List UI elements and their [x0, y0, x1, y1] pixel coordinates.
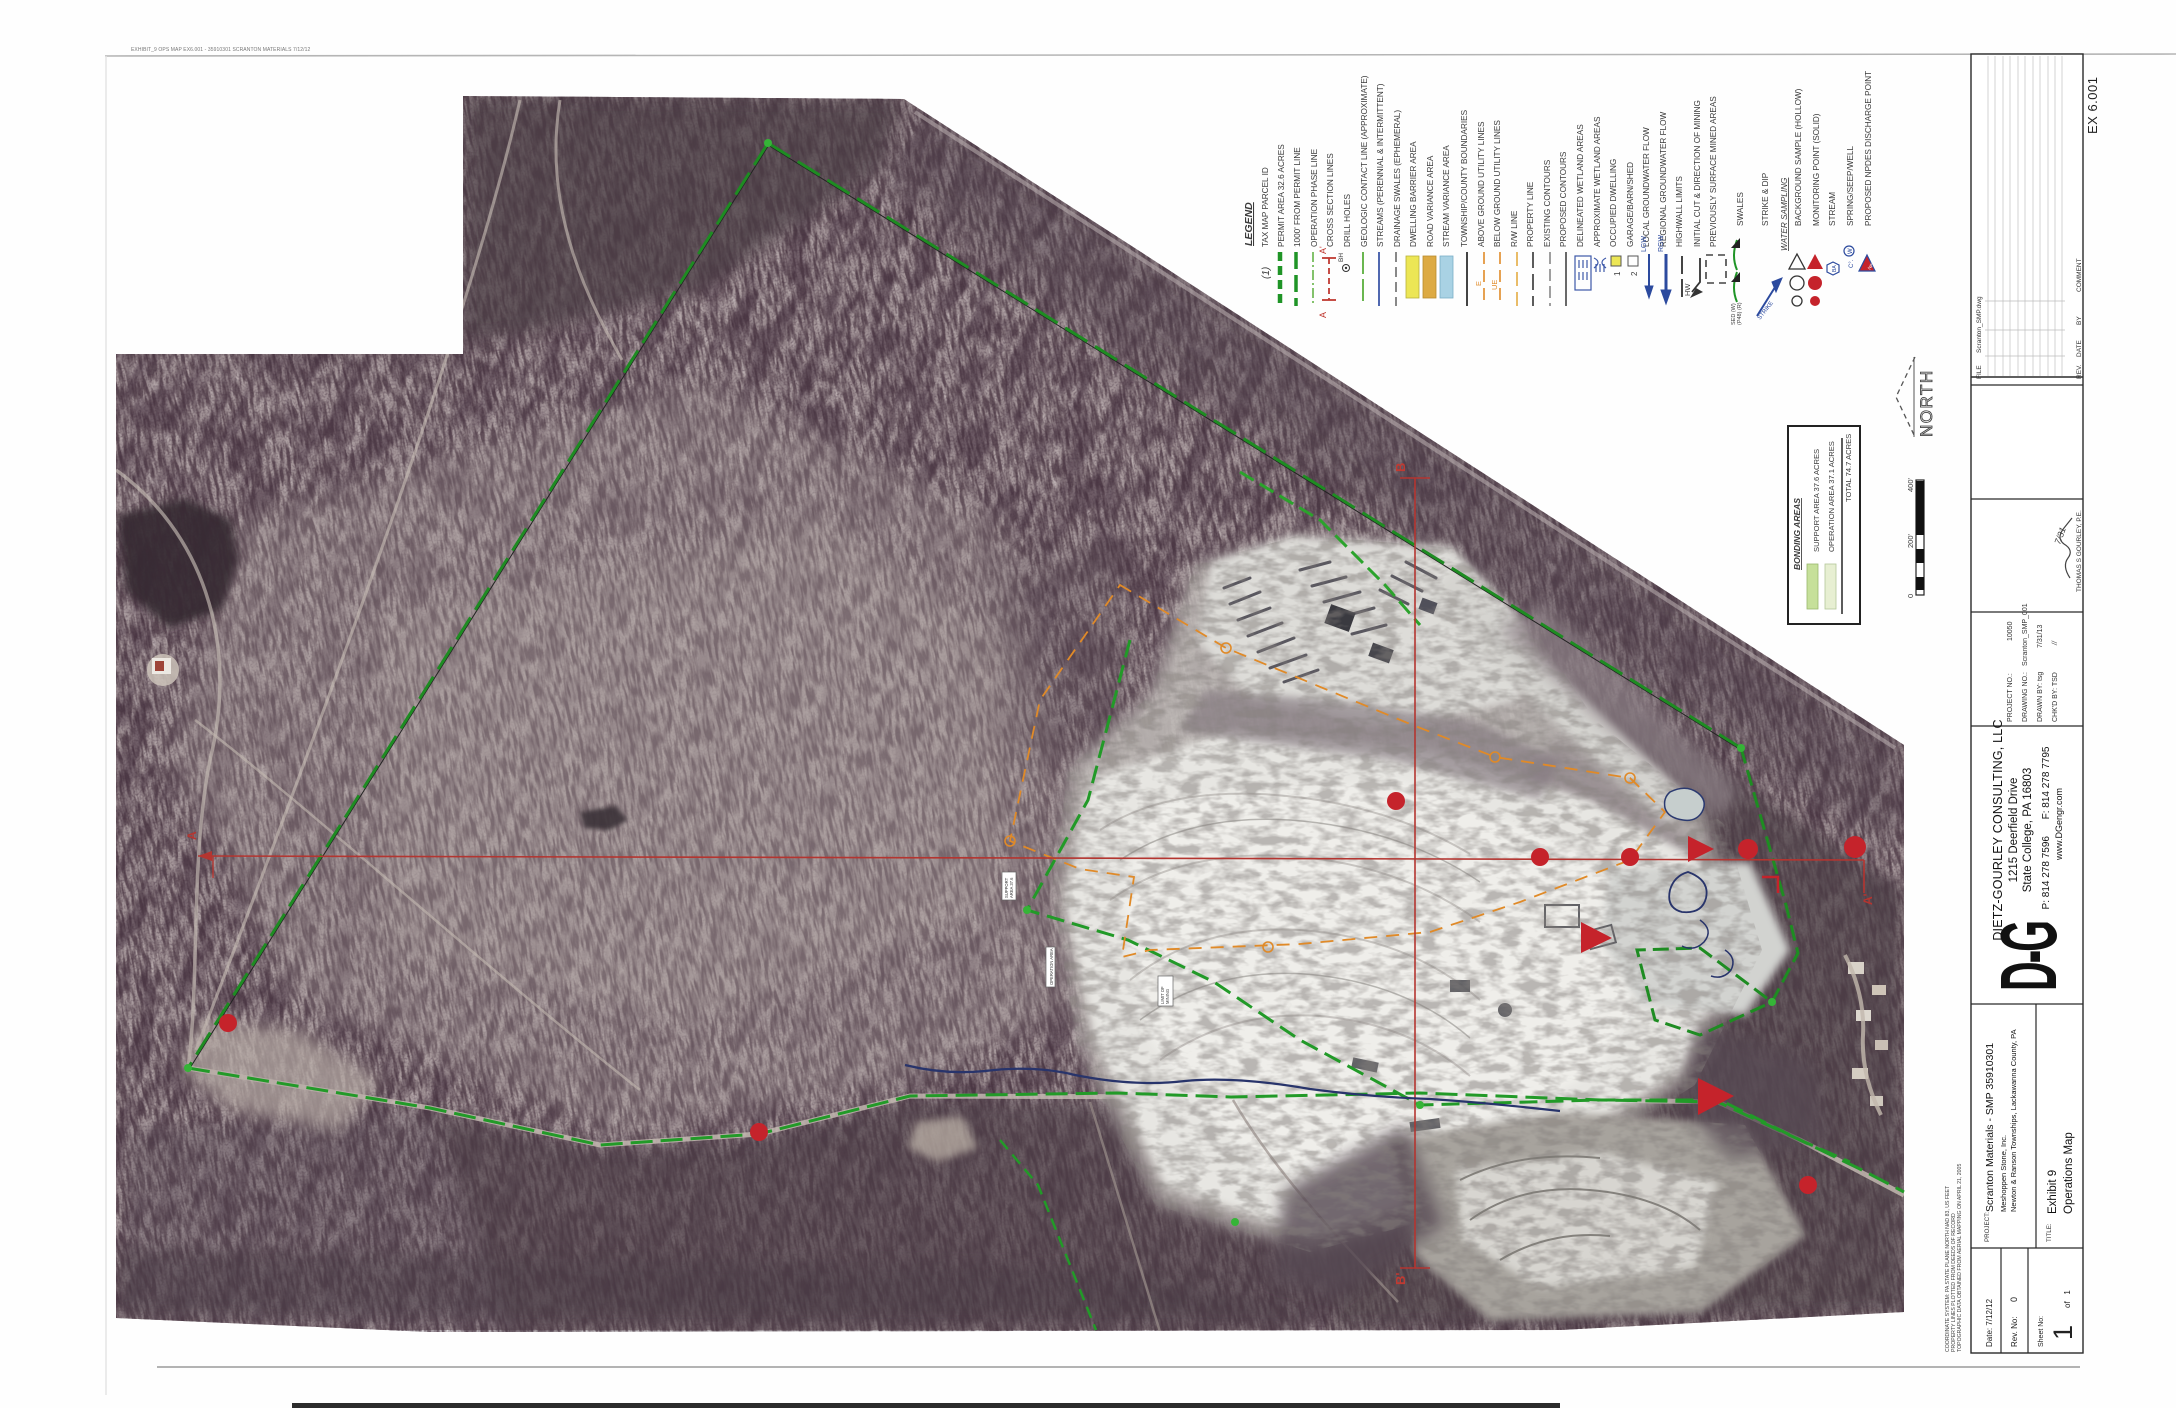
- svg-text:PERMIT AREA 32.6 ACRES: PERMIT AREA 32.6 ACRES: [1277, 144, 1286, 247]
- svg-text:DRAINAGE SWALES (EPHEMERAL): DRAINAGE SWALES (EPHEMERAL): [1393, 110, 1402, 247]
- svg-text:ABOVE GROUND UTILITY LINES: ABOVE GROUND UTILITY LINES: [1477, 121, 1486, 247]
- svg-text:Meshoppen Stone, Inc.: Meshoppen Stone, Inc.: [1999, 1135, 2008, 1212]
- svg-text:WATER SAMPLING: WATER SAMPLING: [1780, 177, 1789, 251]
- svg-text:OPERATION AREA: OPERATION AREA: [1049, 948, 1054, 985]
- svg-text:FILE: FILE: [1976, 365, 1983, 379]
- svg-text:BELOW GROUND UTILITY LINES: BELOW GROUND UTILITY LINES: [1493, 120, 1502, 247]
- svg-text:PROPERTY LINE: PROPERTY LINE: [1526, 181, 1535, 247]
- svg-text:7/31/13: 7/31/13: [2037, 625, 2044, 648]
- svg-text:0: 0: [1906, 594, 1915, 598]
- svg-text:P: 814 278 7596 F: 814 27: P: 814 278 7596 F: 814 278 7795: [2041, 746, 2052, 909]
- svg-text:THOMAS S GOURLEY, P.E.: THOMAS S GOURLEY, P.E.: [2076, 510, 2083, 592]
- svg-text:R/W LINE: R/W LINE: [1510, 210, 1519, 247]
- svg-text:MINING: MINING: [1165, 989, 1170, 1004]
- svg-text:Sheet No:: Sheet No:: [2038, 1316, 2045, 1347]
- svg-text:DIETZ-GOURLEY CONSULTING, LLC: DIETZ-GOURLEY CONSULTING, LLC: [1991, 719, 2005, 940]
- svg-text:PROJECT:: PROJECT:: [1984, 1212, 1991, 1242]
- svg-text:TOWNSHIP/COUNTY BOUNDARIES: TOWNSHIP/COUNTY BOUNDARIES: [1460, 109, 1469, 247]
- svg-text:TOPOGRAPHIC DATA OBTAINED FROM: TOPOGRAPHIC DATA OBTAINED FROM AERIAL MA…: [1957, 1164, 1963, 1352]
- svg-text:LEGEND: LEGEND: [1243, 202, 1255, 246]
- svg-text:1: 1: [1613, 271, 1622, 276]
- svg-text:B': B': [1393, 1273, 1408, 1285]
- svg-text:STREAMS (PERENNIAL & INTERMITT: STREAMS (PERENNIAL & INTERMITTENT): [1376, 83, 1385, 247]
- svg-text:Rev. No:: Rev. No:: [2010, 1316, 2019, 1347]
- svg-text:DELINEATED WETLAND AREAS: DELINEATED WETLAND AREAS: [1576, 124, 1585, 247]
- svg-text:BY: BY: [2076, 316, 2083, 325]
- svg-text:Date: 7/12/12: Date: 7/12/12: [1985, 1298, 1994, 1347]
- svg-text:2: 2: [1630, 271, 1639, 276]
- svg-text:E: E: [1474, 281, 1483, 286]
- svg-text:B: B: [1393, 463, 1408, 472]
- svg-text:Operations Map: Operations Map: [2063, 1132, 2075, 1214]
- svg-text:A: A: [1318, 312, 1328, 318]
- svg-text:OPERATION AREA 37.1 ACRES: OPERATION AREA 37.1 ACRES: [1827, 441, 1836, 552]
- svg-text:GARAGE/BARN/SHED: GARAGE/BARN/SHED: [1626, 162, 1635, 247]
- svg-text:W: W: [1848, 248, 1854, 254]
- svg-text:SPRING/SEEP/WELL: SPRING/SEEP/WELL: [1846, 145, 1855, 226]
- svg-text:Scranton Materials - SMP 35910: Scranton Materials - SMP 35910301: [1984, 1043, 1996, 1212]
- svg-text:DRILL HOLES: DRILL HOLES: [1343, 194, 1352, 247]
- svg-text:10050: 10050: [2007, 621, 2014, 641]
- svg-text:BH: BH: [1338, 253, 1345, 262]
- svg-text:STREAM: STREAM: [1828, 192, 1837, 226]
- svg-text:OPERATION PHASE LINE: OPERATION PHASE LINE: [1310, 148, 1319, 247]
- svg-text:PROPOSED CONTOURS: PROPOSED CONTOURS: [1559, 151, 1568, 247]
- svg-text:STREAM VARIANCE AREA: STREAM VARIANCE AREA: [1442, 145, 1451, 247]
- svg-text:REV.: REV.: [2076, 364, 2083, 379]
- svg-text:HW: HW: [1683, 283, 1692, 296]
- svg-text:EX 6.001: EX 6.001: [2085, 77, 2100, 135]
- svg-text:NORTH: NORTH: [1917, 369, 1936, 437]
- svg-text:STRIKE & DIP: STRIKE & DIP: [1761, 172, 1770, 226]
- svg-text:ROAD VARIANCE AREA: ROAD VARIANCE AREA: [1426, 155, 1435, 247]
- svg-text:SUPPORT AREA 37.6 ACRES: SUPPORT AREA 37.6 ACRES: [1812, 449, 1821, 552]
- svg-text:OCCUPIED DWELLING: OCCUPIED DWELLING: [1609, 159, 1618, 247]
- svg-text:UE: UE: [1490, 280, 1499, 290]
- svg-text:TITLE:: TITLE:: [2046, 1223, 2053, 1242]
- svg-text:EXHIBIT_9 OPS MAP EX6.001 - 35: EXHIBIT_9 OPS MAP EX6.001 - 35910301 SCR…: [131, 47, 311, 53]
- svg-text:RGW: RGW: [1658, 235, 1665, 253]
- svg-text:Exhibit 9: Exhibit 9: [2047, 1170, 2059, 1214]
- svg-text:BA: BA: [1832, 265, 1838, 272]
- svg-text:APPROXIMATE WETLAND AREAS: APPROXIMATE WETLAND AREAS: [1593, 116, 1602, 247]
- svg-text:GEOLOGIC CONTACT LINE (APPROXI: GEOLOGIC CONTACT LINE (APPROXIMATE): [1360, 75, 1369, 247]
- svg-text:D-G: D-G: [1986, 922, 2074, 991]
- svg-text:Newton & Ranson Townships, Lac: Newton & Ranson Townships, Lackawanna Co…: [2009, 1029, 2018, 1212]
- svg-text:A': A': [1318, 246, 1328, 254]
- svg-text:LGW: LGW: [1641, 236, 1648, 252]
- svg-text:0: 0: [2009, 1297, 2019, 1302]
- svg-text:SWALES: SWALES: [1736, 192, 1745, 226]
- svg-text:PROPOSED NPDES DISCHARGE POINT: PROPOSED NPDES DISCHARGE POINT: [1864, 71, 1873, 226]
- svg-text:MONITORING POINT (SOLID): MONITORING POINT (SOLID): [1812, 113, 1821, 226]
- svg-text:CROSS SECTION LINES: CROSS SECTION LINES: [1326, 153, 1335, 247]
- svg-text:A: A: [185, 831, 199, 840]
- svg-text:Scranton_SMP_001: Scranton_SMP_001: [2022, 603, 2029, 666]
- svg-text:Scranton_SMP.dwg: Scranton_SMP.dwg: [1976, 296, 1983, 353]
- svg-text:1: 1: [2048, 1325, 2078, 1340]
- svg-text:A': A': [1861, 893, 1875, 905]
- svg-text:(P48) (R): (P48) (R): [1737, 302, 1743, 325]
- svg-text:TAX MAP PARCEL ID: TAX MAP PARCEL ID: [1261, 167, 1270, 247]
- svg-text:AREA 37.6: AREA 37.6: [1009, 877, 1014, 898]
- svg-text:INITIAL CUT & DIRECTION OF MIN: INITIAL CUT & DIRECTION OF MINING: [1693, 100, 1702, 247]
- svg-text:LOCAL GROUNDWATER FLOW: LOCAL GROUNDWATER FLOW: [1642, 127, 1651, 247]
- svg-text:DRAWN BY: tsg: DRAWN BY: tsg: [2037, 672, 2044, 722]
- svg-text:200': 200': [1906, 533, 1915, 548]
- svg-text:C°.: C°.: [1849, 259, 1855, 268]
- svg-text:COMMENT: COMMENT: [2076, 258, 2083, 292]
- svg-text:State College, PA 16803: State College, PA 16803: [2022, 768, 2034, 892]
- svg-text:TOTAL 74.7 ACRES: TOTAL 74.7 ACRES: [1844, 434, 1853, 502]
- svg-text:(1): (1): [1261, 267, 1272, 279]
- svg-text:HIGHWALL LIMITS: HIGHWALL LIMITS: [1675, 176, 1684, 247]
- svg-text:BONDING AREAS: BONDING AREAS: [1792, 498, 1802, 570]
- svg-text:of 1: of 1: [2063, 1290, 2072, 1308]
- svg-text:REGIONAL GROUNDWATER FLOW: REGIONAL GROUNDWATER FLOW: [1659, 111, 1668, 247]
- svg-text:PREVIOUSLY SURFACE MINED AREAS: PREVIOUSLY SURFACE MINED AREAS: [1709, 96, 1718, 247]
- svg-text:1215 Deerfield Drive: 1215 Deerfield Drive: [2008, 778, 2020, 883]
- svg-text:400': 400': [1906, 477, 1915, 492]
- svg-text:DRAWING NO.:: DRAWING NO.:: [2022, 672, 2029, 722]
- svg-text:CHK'D BY: TSD: CHK'D BY: TSD: [2052, 672, 2059, 722]
- svg-text:BACKGROUND SAMPLE (HOLLOW): BACKGROUND SAMPLE (HOLLOW): [1794, 88, 1803, 226]
- svg-text:1000' FROM PERMIT LINE: 1000' FROM PERMIT LINE: [1293, 147, 1302, 247]
- svg-text:PROJECT NO.:: PROJECT NO.:: [2007, 673, 2014, 722]
- svg-text:DWELLING BARRIER AREA: DWELLING BARRIER AREA: [1409, 141, 1418, 247]
- svg-text:www.DGengr.com: www.DGengr.com: [2054, 788, 2064, 861]
- svg-text:DATE: DATE: [2076, 339, 2083, 357]
- svg-text:EXISTING CONTOURS: EXISTING CONTOURS: [1543, 159, 1552, 247]
